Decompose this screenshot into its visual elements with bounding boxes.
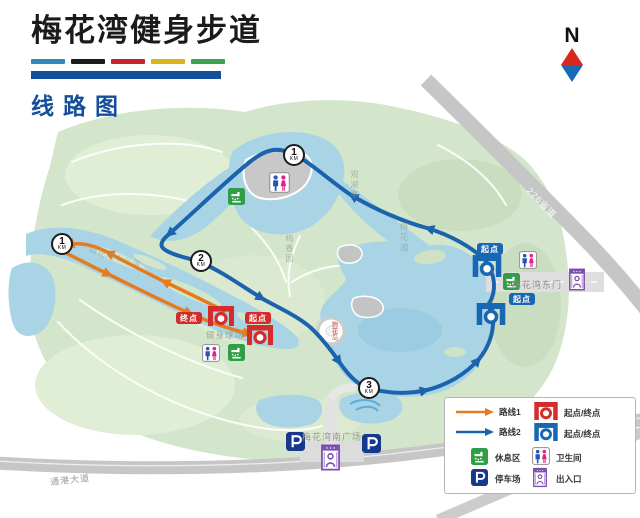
toilet-icon-north bbox=[269, 172, 290, 193]
legend-start-end-red-label: 起点/终点 bbox=[564, 407, 600, 419]
rest-area-icon-north bbox=[228, 188, 245, 205]
km-marker-route2-3: 3 KM bbox=[358, 377, 380, 399]
start-badge-east-top: 起点 bbox=[477, 243, 503, 255]
km-marker-route1-1: 1 KM bbox=[51, 233, 73, 255]
olympic-color-bars bbox=[31, 59, 225, 64]
compass-needle-icon bbox=[560, 48, 584, 82]
page-title: 梅花湾健身步道 bbox=[31, 12, 262, 51]
legend-entrance-icon bbox=[533, 467, 547, 488]
title-underline bbox=[31, 71, 221, 79]
pavilion-label: 观湖亭 bbox=[349, 170, 360, 200]
compass: N bbox=[552, 26, 592, 82]
km-marker-route2-2: 2 KM bbox=[190, 250, 212, 272]
legend-gate-icon-blue bbox=[534, 423, 558, 441]
km-unit: KM bbox=[197, 263, 206, 268]
start-end-gate-icon-red-b bbox=[246, 325, 274, 345]
toilet-icon-west bbox=[202, 344, 220, 362]
subtitle: 线路图 bbox=[31, 87, 262, 121]
entrance-icon-east bbox=[569, 268, 585, 291]
start-badge-east-bottom: 起点 bbox=[509, 293, 535, 305]
km-unit: KM bbox=[58, 246, 67, 251]
legend-route2-label: 路线2 bbox=[499, 426, 521, 438]
east-gate-label: 梅花湾东门 bbox=[512, 278, 562, 291]
header: 梅花湾健身步道 线路图 bbox=[31, 12, 262, 121]
parking-icon-south-right bbox=[362, 434, 381, 453]
legend-toilet-icon bbox=[532, 447, 550, 465]
south-plaza-label: 梅花湾南广场 bbox=[302, 430, 362, 443]
legend-gate-icon-red bbox=[534, 402, 558, 420]
bar-red bbox=[111, 59, 145, 64]
end-badge-west: 终点 bbox=[176, 312, 202, 324]
legend-parking-icon bbox=[471, 469, 488, 486]
compass-north-label: N bbox=[552, 26, 592, 46]
bar-yellow bbox=[151, 59, 185, 64]
rest-area-icon-west bbox=[228, 344, 245, 361]
bar-blue bbox=[31, 59, 65, 64]
legend-box: 路线1 路线2 起点/终点 起点/终点 休息区 卫生间 停车场 出入口 bbox=[444, 397, 636, 494]
garden-label: 梅香园 bbox=[284, 234, 295, 264]
route1-arrow-icon bbox=[455, 407, 495, 417]
km-unit: KM bbox=[365, 390, 374, 395]
start-badge-west: 起点 bbox=[245, 312, 271, 324]
legend-parking-label: 停车场 bbox=[495, 473, 521, 485]
fitness-court-label: 健身球场 bbox=[206, 329, 244, 341]
island-label: 梅花岛 bbox=[328, 321, 338, 341]
legend-entrance-label: 出入口 bbox=[556, 473, 582, 485]
entrance-icon-south bbox=[321, 444, 340, 471]
route-map-poster: 梅花湾健身步道 线路图 N 1 KM 1 KM 2 KM 3 KM 起点 bbox=[0, 0, 640, 518]
route2-arrow-icon bbox=[455, 427, 495, 437]
legend-route1-label: 路线1 bbox=[499, 406, 521, 418]
toilet-icon-east bbox=[519, 251, 537, 269]
km-unit: KM bbox=[290, 157, 299, 162]
legend-start-end-blue-label: 起点/终点 bbox=[564, 428, 600, 440]
legend-toilet-label: 卫生间 bbox=[556, 452, 582, 464]
start-end-gate-icon-blue-bottom bbox=[476, 303, 506, 325]
lake-label: 梅花湖 bbox=[398, 222, 410, 254]
start-end-gate-icon-red-a bbox=[207, 306, 235, 326]
bar-black bbox=[71, 59, 105, 64]
legend-rest-area-icon bbox=[471, 448, 488, 465]
bar-green bbox=[191, 59, 225, 64]
legend-rest-area-label: 休息区 bbox=[495, 452, 521, 464]
km-marker-route2-1: 1 KM bbox=[283, 144, 305, 166]
start-end-gate-icon-blue-top bbox=[472, 255, 502, 277]
